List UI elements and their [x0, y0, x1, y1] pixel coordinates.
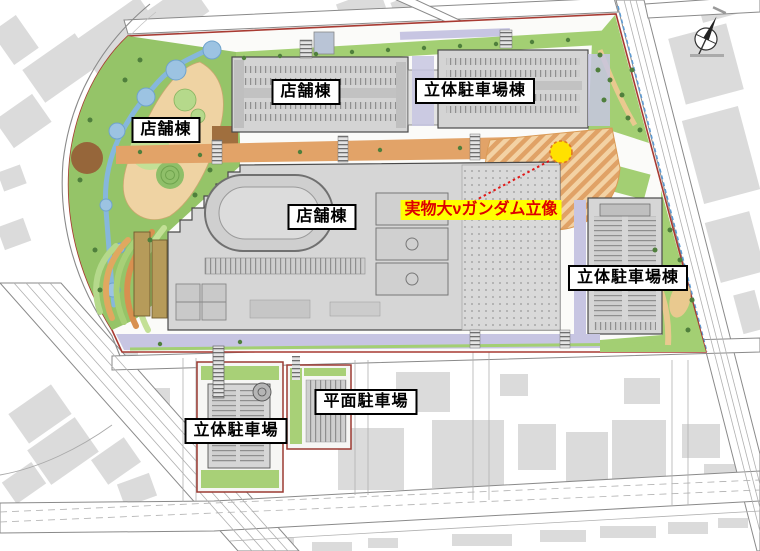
pedestrian-bridge [213, 346, 224, 398]
label-parking-deck-north: 立体駐車場棟 [415, 78, 535, 104]
label-store-nw: 店舗棟 [131, 117, 200, 143]
roof-equipment-1 [250, 300, 310, 318]
label-parking-deck-south: 立体駐車場 [184, 418, 287, 444]
gundam-statue-marker [550, 141, 572, 163]
mall-east-roof [462, 165, 560, 330]
label-parking-deck-east: 立体駐車場棟 [568, 265, 688, 291]
label-surface-lot-south: 平面駐車場 [314, 389, 417, 415]
park-plaza-brown [71, 142, 103, 174]
deck-lavender-loop [588, 54, 610, 126]
north-ramp [314, 32, 334, 54]
compass-caption [690, 54, 724, 57]
label-store-main: 店舗棟 [287, 204, 356, 230]
label-store-north: 店舗棟 [271, 79, 340, 105]
roof-strip [205, 258, 365, 274]
site-plan: 店舗棟 店舗棟 立体駐車場棟 店舗棟 実物大νガンダム立像 立体駐車場棟 立体駐… [0, 0, 760, 551]
roof-equipment-2 [330, 302, 380, 316]
label-gundam-statue: 実物大νガンダム立像 [401, 200, 562, 220]
